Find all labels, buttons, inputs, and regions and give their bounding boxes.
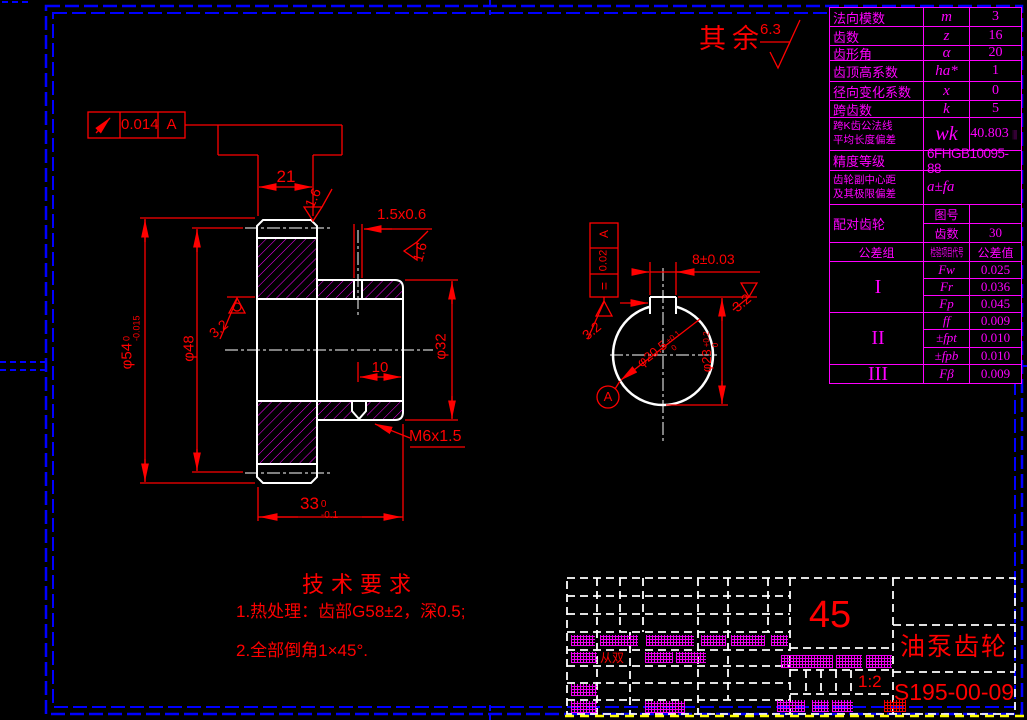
dim-value: φ54 [119,343,136,369]
symmetry-symbol-icon: = [597,280,611,292]
gear-table-row: 公差组检验项目代号公差值 [830,242,1021,261]
tol-item-value: 0.009 [969,365,1021,383]
garbled-text-block [731,635,765,646]
gear-table-row: 径向变化系数x0 [830,81,1021,100]
tol-header: 公差值 [969,243,1021,261]
tol-item-value: 0.009 [969,313,1021,329]
param-symbol: ha* [923,61,969,81]
dim-keyway-depth: φ23+0.20 [699,307,721,397]
dim-value: 33 [300,494,319,513]
dim-phi48: φ48 [182,319,197,379]
gear-table-row: IIIFβ0.009 [830,364,1021,383]
garbled-text-block [676,652,706,663]
tol-item-value: 0.036 [969,279,1021,295]
garbled-text-block [645,652,673,663]
gear-table-row: 齿顶高系数ha*1 [830,60,1021,81]
gear-table-row: 配对齿轮图号齿数30 [830,204,1021,242]
fcf-runout-value: 0.014 [121,117,158,132]
tol-item-symbol: ±fpb [923,348,969,364]
param-label: 齿顶高系数 [830,61,923,81]
param-label: 齿形角 [830,46,923,60]
garbled-text-block [646,635,694,646]
param-sublabel: 齿数 [923,224,969,242]
tech-requirements-title: 技术要求 [302,574,418,596]
param-symbol: m [923,8,969,26]
tol-item-value: 0.045 [969,296,1021,312]
tech-requirement-line: 1.热处理：齿部G58±2，深0.5; [236,603,465,620]
tol-item-symbol: Fp [923,296,969,312]
param-symbol: z [923,27,969,45]
dim-21: 21 [266,168,306,185]
tolerance-stack: +0.20 [703,331,721,347]
tol-group-name: III [830,365,923,383]
tolerance-stack: 0-0.1 [321,499,338,521]
param-value: 0 [969,82,1021,100]
dim-phi54: φ540-0.015 [120,287,143,397]
param-label: 精度等级 [830,151,923,170]
gear-table-row: 齿数z16 [830,26,1021,45]
garbled-text-block [781,655,833,668]
garbled-text-block [571,652,597,663]
runout-arrow-icon [96,118,110,133]
fcf-runout-datum: A [158,117,185,132]
param-value: 3 [969,8,1021,26]
rest-roughness-value: 6.3 [760,22,781,37]
garbled-text-block [600,635,638,646]
tol-item-value: 0.010 [969,330,1021,346]
param-value: 6FHGB10095-88 [923,151,1021,170]
param-label: 配对齿轮 [830,205,923,242]
garbled-text-block [836,655,862,668]
garbled-text-block [571,684,597,696]
tol-group-items: Fw0.025Fr0.036Fp0.045 [923,262,1021,312]
scale-value: 1:2 [858,673,882,690]
dim-value: φ23 [699,349,714,372]
tol-header: 检验项目代号 [923,243,969,261]
garbled-text-block [777,700,805,712]
part-name: 油泵齿轮 [893,635,1015,660]
dim-33: 330-0.1 [300,495,338,521]
tol-header: 公差组 [830,243,923,261]
dim-thread: M6x1.5 [409,429,461,445]
tol-item-symbol: Fr [923,279,969,295]
gear-table-row: 精度等级6FHGB10095-88 [830,150,1021,170]
tol-header-label: 检验项目代号 [930,244,963,260]
param-value: 20 [969,46,1021,60]
param-label: 法向模数 [830,8,923,26]
garbled-text-block [832,700,853,712]
gear-parameter-table: 法向模数m3齿数z16齿形角α20齿顶高系数ha*1径向变化系数x0跨齿数k5跨… [829,7,1022,384]
garbled-text-block [571,701,597,713]
param-value: 1 [969,61,1021,81]
param-label: 跨K齿公法线 平均长度偏差 [830,118,923,150]
section-hatch [258,239,402,463]
gear-table-row: 法向模数m3 [830,8,1021,26]
illegible-tolerance: |||| [1012,129,1017,140]
param-label: 齿数 [830,27,923,45]
gear-table-row: 齿形角α20 [830,45,1021,60]
garbled-text-block [866,655,892,668]
tech-requirement-line: 2.全部倒角1×45°. [236,642,368,659]
param-symbol: x [923,82,969,100]
param-value: 16 [969,27,1021,45]
tolerance-stack: 0-0.015 [123,315,143,341]
drawing-number: S195-00-09 [893,681,1015,704]
gear-table-row: 齿轮副中心距 及其极限偏差a±fa [830,170,1021,204]
param-symbol: α [923,46,969,60]
gear-table-row: IIff0.009±fpt0.010±fpb0.010 [830,312,1021,364]
garbled-text-block [701,635,726,646]
param-value [969,205,1021,223]
param-value: 30 [969,224,1021,242]
pair-subtable: 图号齿数30 [923,205,1021,242]
fcf-symmetry-datum: A [598,224,610,244]
dim-10: 10 [366,360,394,375]
dim-chamfer: 1.5x0.6 [377,207,426,222]
tol-item-value: 0.010 [969,348,1021,364]
datum-label: A [601,390,615,403]
tol-group-items: ff0.009±fpt0.010±fpb0.010 [923,313,1021,364]
tol-group-name: II [830,313,923,364]
tol-item-symbol: Fβ [923,365,969,383]
dimension-lines [88,20,800,521]
param-label: 跨齿数 [830,101,923,117]
param-symbol: k [923,101,969,117]
gear-table-row: IFw0.025Fr0.036Fp0.045 [830,261,1021,312]
dim-phi32: φ32 [434,317,449,377]
fcf-symmetry-value: 0.02 [599,246,610,276]
gear-table-row: 跨齿数k5 [830,100,1021,117]
garbled-text-block [812,700,829,712]
param-value: a±fa [923,171,1021,204]
garbled-text-block [571,635,595,646]
param-label: 径向变化系数 [830,82,923,100]
tol-group-name: I [830,262,923,312]
material-label: 45 [780,596,880,634]
tol-item-symbol: ff [923,313,969,329]
rest-surface-note: 其余 [699,26,765,53]
garbled-text-block [771,635,788,646]
dim-keyway-width: 8±0.03 [692,252,735,266]
tol-item-symbol: ±fpt [923,330,969,346]
title-block-red-fragment: 从双 [600,652,624,664]
garbled-text-block [645,701,685,713]
param-sublabel: 图号 [923,205,969,223]
param-value: 5 [969,101,1021,117]
param-label: 齿轮副中心距 及其极限偏差 [830,171,923,204]
tol-group-items: Fβ0.009 [923,365,1021,383]
tol-item-symbol: Fw [923,262,969,278]
tol-item-value: 0.025 [969,262,1021,278]
